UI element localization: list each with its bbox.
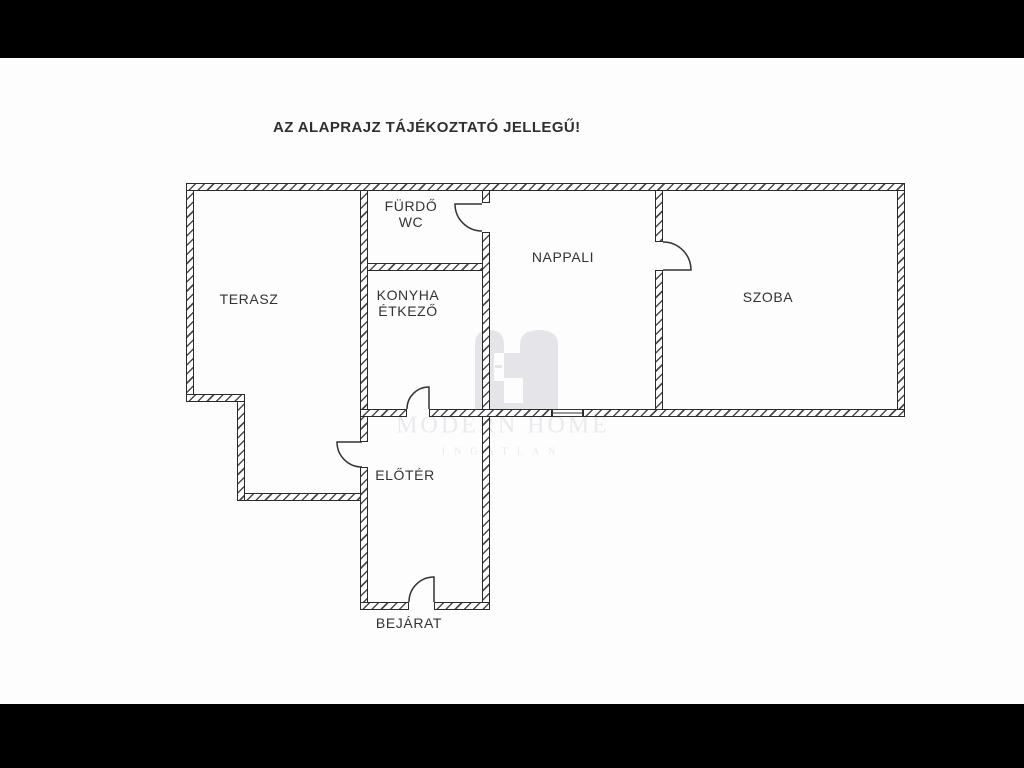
door-eloter-terasz: [337, 442, 362, 467]
door-furdo: [455, 204, 482, 231]
room-label-eloter: ELŐTÉR: [375, 467, 435, 483]
room-label-furdo-wc: FÜRDŐ WC: [385, 198, 438, 230]
room-label-etkezo: ÉTKEZŐ: [377, 303, 440, 319]
room-label-nappali: NAPPALI: [532, 249, 594, 265]
room-label-furdo: FÜRDŐ: [385, 198, 438, 214]
room-label-konyha-etkezo: KONYHA ÉTKEZŐ: [377, 287, 440, 319]
doors-and-window-layer: [0, 0, 1024, 768]
room-label-wc: WC: [385, 214, 438, 230]
door-szoba: [663, 242, 691, 270]
room-label-konyha: KONYHA: [377, 287, 440, 303]
letterbox-bottom: [0, 704, 1024, 768]
disclaimer-title: AZ ALAPRAJZ TÁJÉKOZTATÓ JELLEGŰ!: [273, 119, 581, 136]
letterbox-top: [0, 0, 1024, 58]
door-konyha: [407, 387, 429, 409]
room-label-terasz: TERASZ: [220, 291, 279, 307]
floorplan-page: MODERN HOME INGATLAN TERASZ FÜRDŐ WC KON…: [0, 0, 1024, 768]
entrance-label-bejarat: BEJÁRAT: [376, 615, 442, 631]
room-label-szoba: SZOBA: [743, 289, 793, 305]
door-bejarat: [409, 577, 434, 602]
